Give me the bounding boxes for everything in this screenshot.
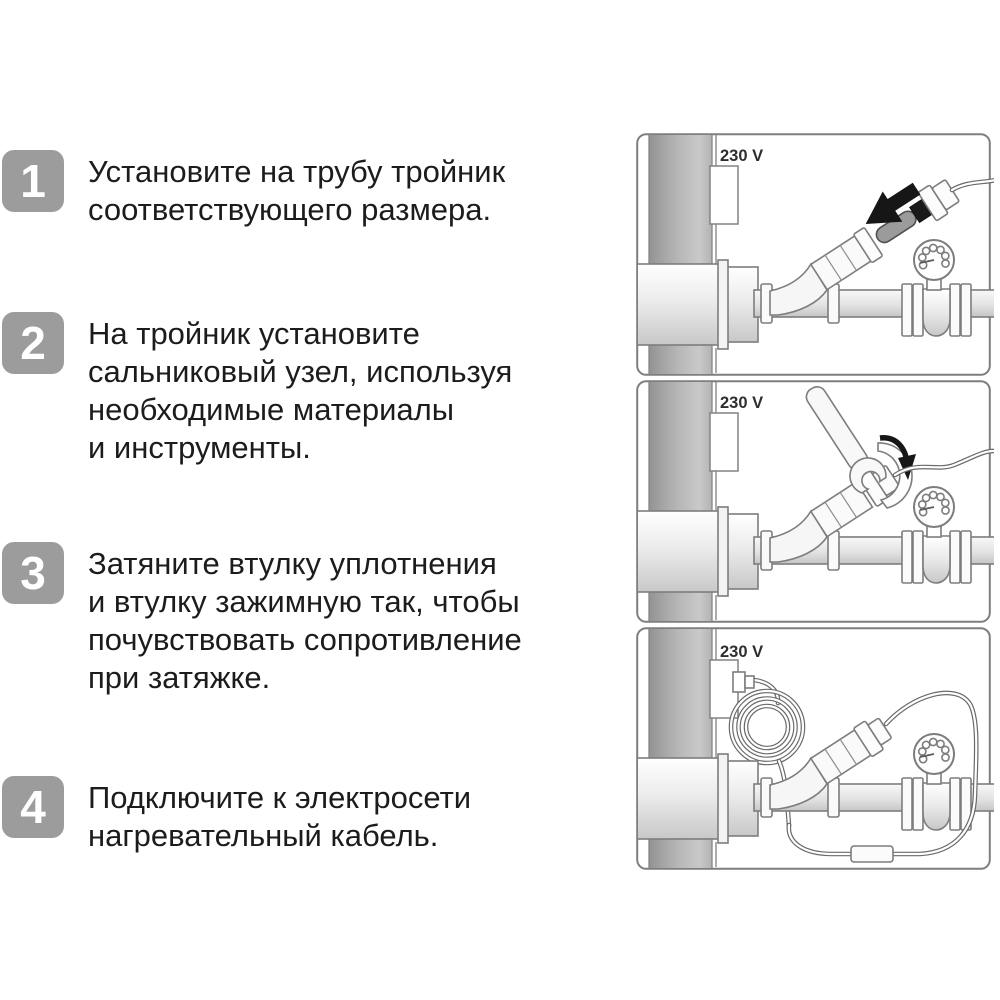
step-1-number-badge: 1 [2,150,64,212]
cable-band [851,846,893,862]
diagram-panel-2: 230 V [637,379,994,622]
step-2-number-badge: 2 [2,312,64,374]
instruction-sheet: 1 Установите на трубу тройник соответств… [0,0,1000,1000]
voltage-label: 230 V [720,394,763,412]
step-4-text: Подключите к электросети нагревательный … [88,779,471,855]
step-4-number-badge: 4 [2,776,64,838]
diagram-panel-3: 230 V [637,628,994,869]
step-3-number-badge: 3 [2,542,64,604]
voltage-label: 230 V [720,147,763,165]
step-2-text: На тройник установите сальниковый узел, … [88,315,512,467]
voltage-label: 230 V [720,643,763,661]
diagram-panel-1: 230 V [637,134,994,375]
step-3-text: Затяните втулку уплотнения и втулку зажи… [88,545,522,697]
step-1-text: Установите на трубу тройник соответствую… [88,153,505,229]
installation-diagram: 230 V 230 V [634,130,994,870]
